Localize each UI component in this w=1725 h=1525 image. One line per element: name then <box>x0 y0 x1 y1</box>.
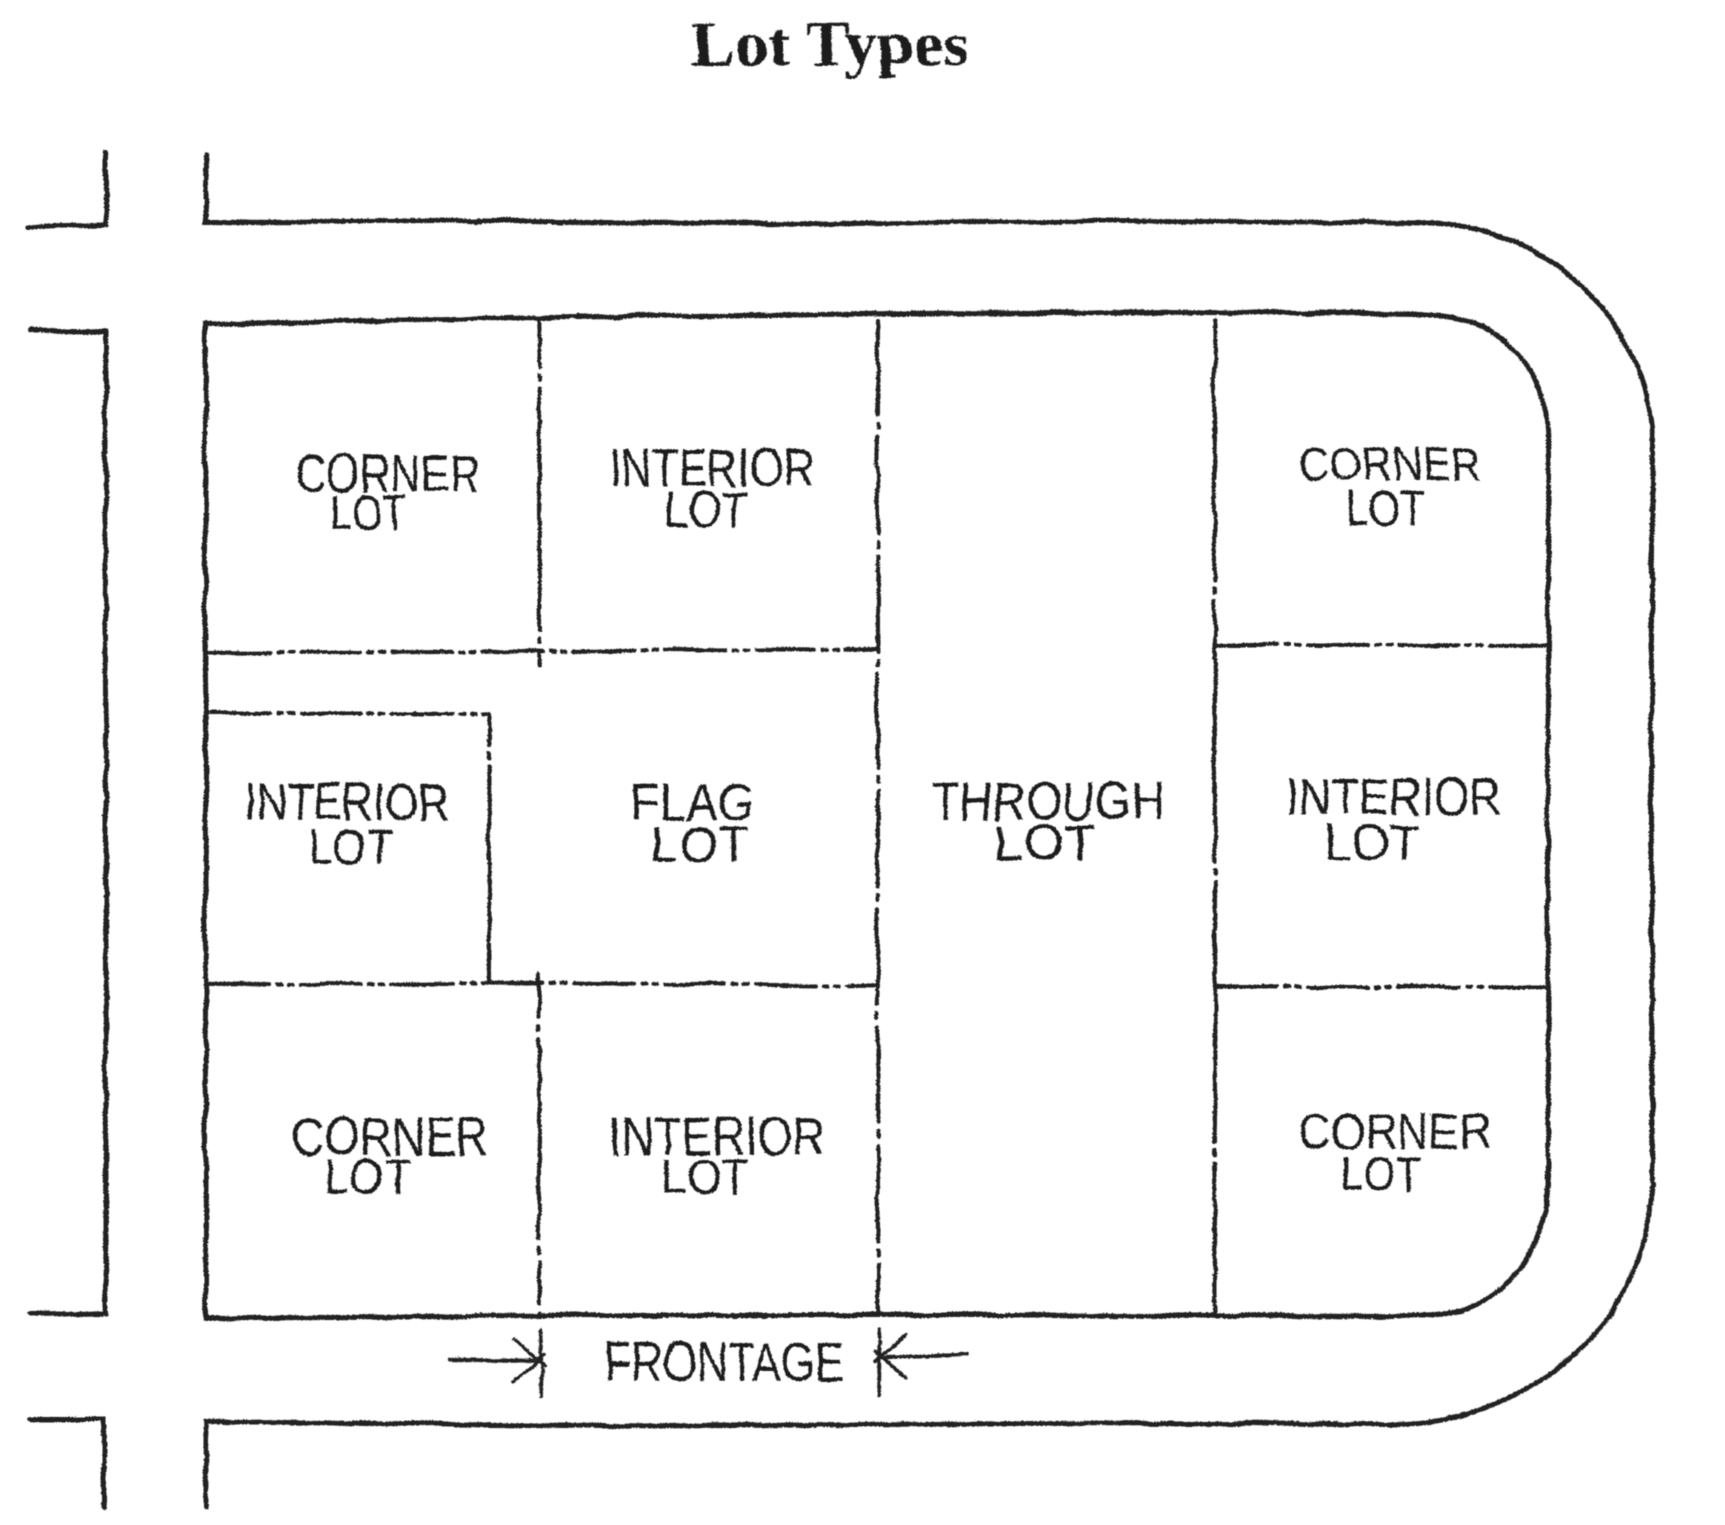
svg-text:LOT: LOT <box>663 480 746 536</box>
svg-text:LOT: LOT <box>992 813 1094 869</box>
svg-text:LOT: LOT <box>1322 813 1418 869</box>
svg-text:LOT: LOT <box>660 1147 746 1203</box>
svg-text:FRONTAGE: FRONTAGE <box>603 1328 842 1391</box>
svg-text:LOT: LOT <box>1345 478 1423 534</box>
svg-text:LOT: LOT <box>307 817 392 873</box>
svg-text:LOT: LOT <box>322 1147 410 1203</box>
svg-text:LOT: LOT <box>649 815 748 871</box>
svg-text:LOT: LOT <box>327 483 405 539</box>
svg-text:Lot Types: Lot Types <box>690 6 967 77</box>
svg-text:LOT: LOT <box>1338 1144 1420 1200</box>
